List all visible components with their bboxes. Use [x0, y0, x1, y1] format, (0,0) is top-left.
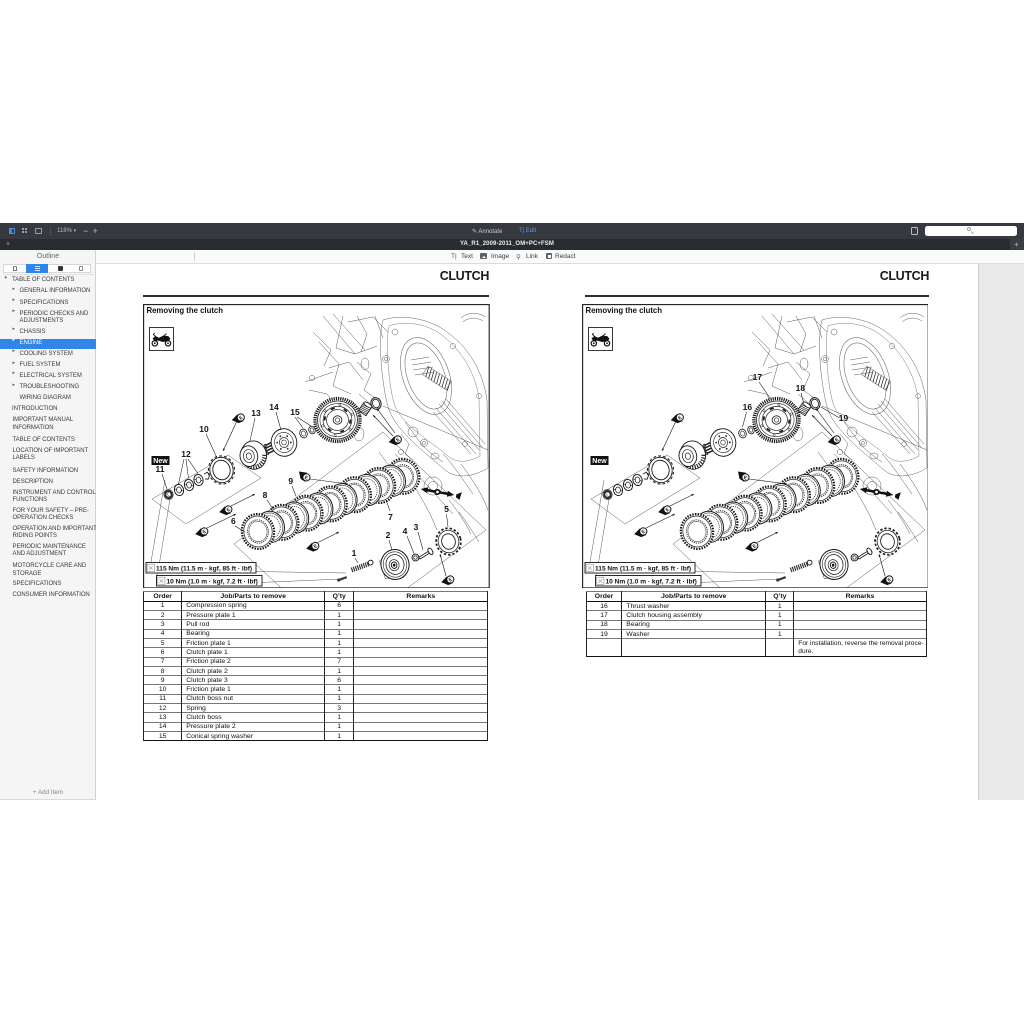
svg-text:3: 3: [413, 521, 418, 531]
svg-text:2: 2: [385, 529, 390, 539]
svg-text:7: 7: [388, 511, 393, 521]
svg-text:9: 9: [288, 475, 293, 485]
svg-text:8: 8: [262, 489, 267, 499]
svg-text:14: 14: [269, 402, 279, 412]
svg-text:5: 5: [444, 503, 449, 513]
svg-text:4: 4: [402, 525, 407, 535]
svg-text:19: 19: [838, 413, 848, 423]
svg-text:13: 13: [251, 408, 261, 418]
svg-text:18: 18: [795, 383, 805, 393]
svg-text:15: 15: [290, 407, 300, 417]
svg-text:10: 10: [199, 424, 209, 434]
svg-text:17: 17: [752, 372, 762, 382]
svg-text:6: 6: [231, 515, 236, 525]
svg-text:12: 12: [181, 448, 191, 458]
svg-text:1: 1: [351, 547, 356, 557]
svg-text:16: 16: [742, 402, 752, 412]
svg-text:11: 11: [155, 463, 164, 473]
